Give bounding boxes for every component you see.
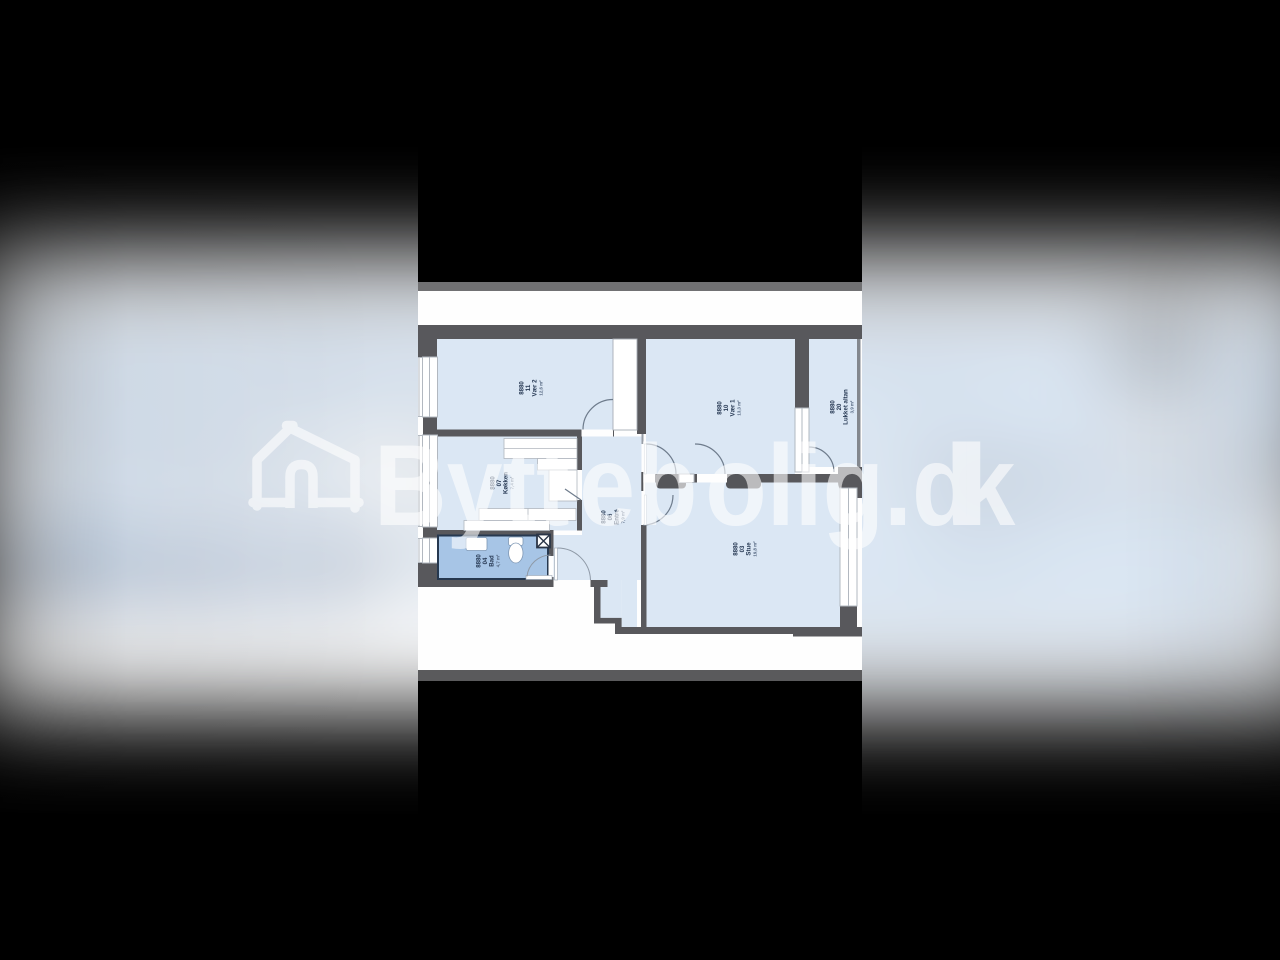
svg-text:Byttebolig.dk: Byttebolig.dk <box>374 421 1016 550</box>
